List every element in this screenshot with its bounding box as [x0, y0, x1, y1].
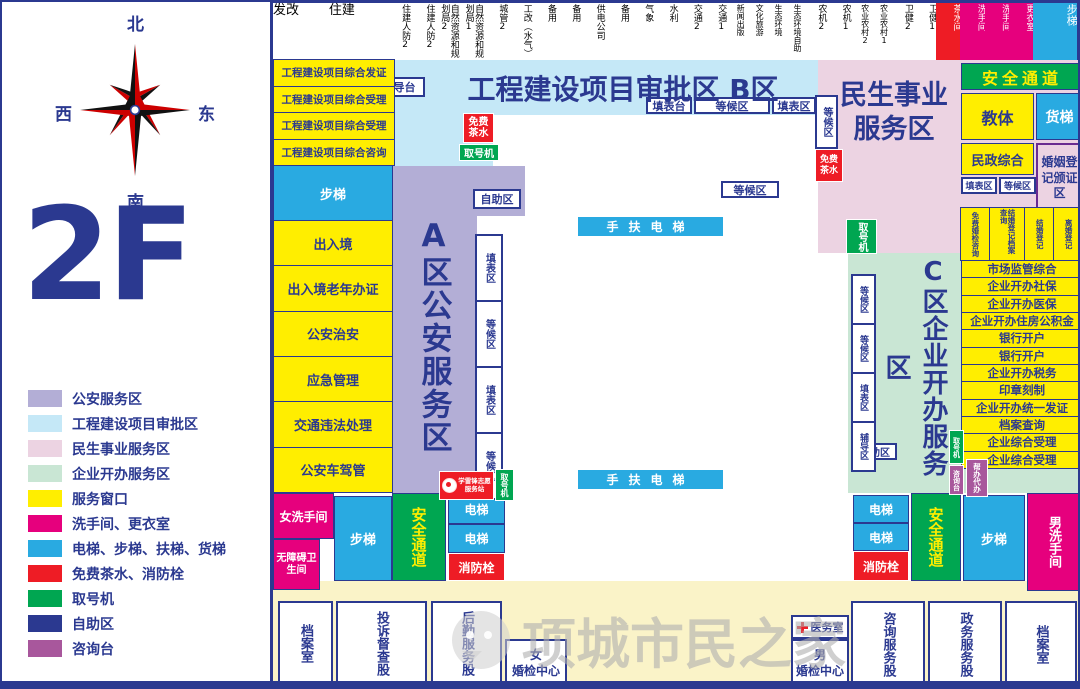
enterprise-window-cell: 市场监管综合 — [961, 260, 1080, 278]
service-window-cell: 步梯 — [1033, 3, 1077, 60]
complaint-office: 投诉督查股 — [336, 601, 427, 685]
service-window-cell: 农机2 — [801, 3, 825, 60]
compass: 北 南 西 东 — [55, 10, 215, 210]
legend-label: 咨询台 — [72, 639, 114, 659]
escalator-bottom: 手扶电梯 — [578, 470, 723, 489]
service-window-cell: 茶水间 — [936, 3, 960, 60]
floor-map-page: 北 南 西 东 2F 公安服务区 工程建设项目审批区 民生事业服 — [0, 0, 1080, 689]
legend-swatch — [28, 515, 62, 532]
service-window-cell: 更衣室 — [1009, 3, 1033, 60]
service-window-cell: 工改（水气） — [506, 3, 530, 60]
legend-item: 免费茶水、消防栓 — [28, 561, 266, 586]
police-window-cell: 公安车驾管 — [273, 447, 393, 493]
legend-item: 公安服务区 — [28, 386, 266, 411]
enterprise-window-cell: 企业开办住房公积金 — [961, 312, 1080, 330]
police-window-cell: 出入境 — [273, 220, 393, 266]
watermark-text: 项城市民之家 — [522, 600, 846, 679]
service-window-cell: 农业农村1 — [869, 3, 888, 60]
service-window-cell: 气象 — [628, 3, 652, 60]
enterprise-window-cell: 企业开办税务 — [961, 364, 1080, 382]
service-window-cell: 洗手间 — [960, 3, 984, 60]
legend-item: 企业开办服务区 — [28, 461, 266, 486]
police-window-cell: 步梯 — [273, 165, 393, 221]
self-service-area-a: 自助区 — [473, 189, 521, 209]
legend-label: 企业开办服务区 — [72, 464, 170, 484]
legend-swatch — [28, 640, 62, 657]
service-window-cell: 卫健2 — [888, 3, 912, 60]
legend-item: 洗手间、更衣室 — [28, 511, 266, 536]
legend-label: 民生事业服务区 — [72, 439, 170, 459]
a-stack-box: 填表区 — [475, 366, 503, 434]
accessible-restroom: 无障碍卫生间 — [273, 539, 320, 590]
fire-hydrant-right: 消防栓 — [853, 551, 909, 581]
legend-label: 免费茶水、消防栓 — [72, 564, 184, 584]
enterprise-window-cell: 企业综合受理 — [961, 433, 1080, 451]
safe-passage-top: 安全通道 — [961, 63, 1080, 90]
legend-label: 服务窗口 — [72, 489, 128, 509]
b-window-cell: 工程建设项目综合受理 — [273, 112, 395, 140]
elevator-right-1: 电梯 — [853, 495, 909, 523]
c-stack-box: 等候区 — [851, 323, 876, 374]
enterprise-window-cell: 企业开办统一发证 — [961, 399, 1080, 417]
service-window-cell: 洗手间 — [985, 3, 1009, 60]
enterprise-window-cell: 银行开户 — [961, 329, 1080, 347]
service-window-cell: 新闻出版 — [725, 3, 744, 60]
ticket-machine-minsheng: 取号机 — [846, 219, 877, 254]
legend-swatch — [28, 415, 62, 432]
service-window-cell: 供电公司 — [579, 3, 603, 60]
b-area-title: 工程建设项目审批区 B区 — [428, 67, 818, 109]
fire-hydrant-left: 消防栓 — [448, 553, 505, 581]
legend-swatch — [28, 615, 62, 632]
marriage-window-cell: 离婚登记 — [1053, 207, 1080, 261]
service-window-cell: 农业农村2 — [850, 3, 869, 60]
police-window-cell: 出入境老年办证 — [273, 265, 393, 311]
stairs-bottom-right: 步梯 — [963, 495, 1025, 581]
civil-affairs-window: 民政综合 — [961, 143, 1034, 175]
service-window-cell: 生态环境 — [763, 3, 782, 60]
wechat-icon — [452, 611, 510, 669]
legend-label: 工程建设项目审批区 — [72, 414, 198, 434]
legend-label: 公安服务区 — [72, 389, 142, 409]
form-area-right: 填表区 — [961, 177, 997, 194]
archive-room-right: 档案室 — [1005, 601, 1077, 687]
legend-swatch — [28, 490, 62, 507]
legend-item: 自助区 — [28, 611, 266, 636]
minsheng-title: 民生事业服务区 — [830, 69, 958, 157]
marriage-windows: 免费婚检咨询结婚登记档案查询结婚登记离婚登记 — [961, 207, 1080, 261]
ticket-machine-b: 取号机 — [459, 144, 499, 161]
enterprise-windows-column: 市场监管综合企业开办社保企业开办医保企业开办住房公积金银行开户银行开户企业开办税… — [961, 261, 1080, 469]
legend-label: 电梯、步梯、扶梯、货梯 — [72, 539, 226, 559]
legend-item: 工程建设项目审批区 — [28, 411, 266, 436]
legend-swatch — [28, 590, 62, 607]
service-window-cell: 备用 — [604, 3, 628, 60]
legend-item: 服务窗口 — [28, 486, 266, 511]
freight-elevator: 货梯 — [1036, 93, 1080, 140]
stairs-bottom-left: 步梯 — [334, 496, 392, 581]
legend-label: 洗手间、更衣室 — [72, 514, 170, 534]
b-window-cell: 工程建设项目综合受理 — [273, 86, 395, 114]
legend-item: 咨询台 — [28, 636, 266, 661]
safe-passage-right: 安全通道 — [911, 493, 961, 581]
service-window-cell: 交通2 — [677, 3, 701, 60]
consult-desk: 咨询台 — [949, 465, 964, 495]
safe-passage-left: 安全通道 — [392, 493, 446, 581]
legend-item: 电梯、步梯、扶梯、货梯 — [28, 536, 266, 561]
b-window-cell: 工程建设项目综合咨询 — [273, 139, 395, 167]
enterprise-window-cell: 档案查询 — [961, 416, 1080, 434]
education-window: 教体 — [961, 93, 1034, 140]
assist-service-desk: 帮办代办 — [966, 459, 988, 497]
archive-room-left: 档案室 — [278, 601, 333, 685]
a-stack-box: 等候区 — [475, 300, 503, 368]
enterprise-window-cell: 企业开办医保 — [961, 295, 1080, 313]
waiting-area-hall: 等候区 — [721, 181, 779, 198]
service-window-cell: 备用 — [555, 3, 579, 60]
c-area-title: C区企业开办服务区 — [871, 256, 959, 478]
service-window-cell: 住建 — [329, 3, 385, 60]
c-area-stack: 等候区等候区填表区辅导区 — [851, 276, 876, 472]
enterprise-window-cell: 印章刻制 — [961, 381, 1080, 399]
compass-west-label: 西 — [55, 100, 72, 125]
service-window-cell: 交通1 — [701, 3, 725, 60]
c-stack-box: 等候区 — [851, 274, 876, 325]
legend-item: 民生事业服务区 — [28, 436, 266, 461]
volunteer-label: 学雷锋志愿服务站 — [457, 478, 492, 494]
top-service-windows: 发改住建住建人防2住建人防2自然资源和规划局2自然资源和规划局1城管2工改（水气… — [273, 3, 1077, 60]
service-window-cell: 文化旅游 — [744, 3, 763, 60]
women-restroom: 女洗手间 — [273, 493, 334, 539]
police-window-cell: 应急管理 — [273, 356, 393, 402]
legend-swatch — [28, 565, 62, 582]
free-tea-b: 免费茶水 — [463, 113, 494, 143]
enterprise-window-cell: 企业开办社保 — [961, 277, 1080, 295]
b-window-cell: 工程建设项目综合发证 — [273, 59, 395, 87]
ticket-machine-a: 取号机 — [495, 469, 514, 501]
service-window-cell: 自然资源和规划局2 — [433, 3, 457, 60]
elevator-right-2: 电梯 — [853, 523, 909, 551]
a-area-title: A区公安服务区 — [396, 193, 472, 478]
service-window-cell: 农机1 — [825, 3, 849, 60]
government-service-office: 政务服务股 — [928, 601, 1002, 687]
legend-label: 自助区 — [72, 614, 114, 634]
c-stack-box: 辅导区 — [851, 421, 876, 472]
legend-swatch — [28, 465, 62, 482]
legend: 公安服务区 工程建设项目审批区 民生事业服务区 企业开办服务区 服务窗口 洗手间… — [28, 386, 266, 661]
hall-white-notch — [493, 115, 818, 168]
bottom-border-bar — [0, 681, 1080, 689]
c-stack-box: 填表区 — [851, 372, 876, 423]
consult-service-office: 咨询服务股 — [851, 601, 925, 687]
waiting-area-right: 等候区 — [999, 177, 1036, 194]
police-window-cell: 公安治安 — [273, 311, 393, 357]
service-window-cell: 住建人防2 — [385, 3, 409, 60]
escalator-top: 手扶电梯 — [578, 217, 723, 236]
legend-swatch — [28, 540, 62, 557]
marriage-window-cell: 免费婚检咨询 — [960, 207, 990, 261]
legend-swatch — [28, 440, 62, 457]
marriage-cert-area: 婚姻登记颁证区 — [1036, 143, 1080, 214]
watermark: 项城市民之家 — [452, 600, 846, 679]
volunteer-logo-icon — [442, 478, 457, 493]
service-window-cell: 卫健1 — [912, 3, 936, 60]
service-window-cell: 发改 — [273, 3, 329, 60]
legend-swatch — [28, 390, 62, 407]
marriage-window-cell: 结婚登记 — [1024, 207, 1054, 261]
volunteer-station: 学雷锋志愿服务站 — [439, 471, 494, 500]
marriage-window-cell: 结婚登记档案查询 — [989, 207, 1026, 261]
a-stack-box: 填表区 — [475, 234, 503, 302]
b-area-windows: 工程建设项目综合发证工程建设项目综合受理工程建设项目综合受理工程建设项目综合咨询 — [273, 60, 395, 166]
floor-label: 2F — [22, 192, 191, 320]
ticket-machine-right: 取号机 — [949, 430, 964, 464]
police-windows-column: 步梯出入境出入境老年办证公安治安应急管理交通违法处理公安车驾管 — [273, 166, 393, 493]
floor-map: 发改住建住建人防2住建人防2自然资源和规划局2自然资源和规划局1城管2工改（水气… — [270, 0, 1080, 689]
legend-item: 取号机 — [28, 586, 266, 611]
legend-label: 取号机 — [72, 589, 114, 609]
service-window-cell: 自然资源和规划局1 — [458, 3, 482, 60]
compass-east-label: 东 — [198, 100, 215, 125]
service-window-cell: 生态环境自助 — [782, 3, 801, 60]
compass-rose-icon — [80, 30, 190, 190]
elevator-left-2: 电梯 — [448, 524, 505, 553]
service-window-cell: 备用 — [531, 3, 555, 60]
enterprise-window-cell: 银行开户 — [961, 347, 1080, 365]
police-window-cell: 交通违法处理 — [273, 401, 393, 447]
service-window-cell: 水利 — [652, 3, 676, 60]
a-area-stack: 填表区等候区填表区等候区 — [475, 236, 503, 500]
service-window-cell: 城管2 — [482, 3, 506, 60]
men-restroom: 男洗手间 — [1027, 493, 1080, 591]
service-window-cell: 住建人防2 — [409, 3, 433, 60]
